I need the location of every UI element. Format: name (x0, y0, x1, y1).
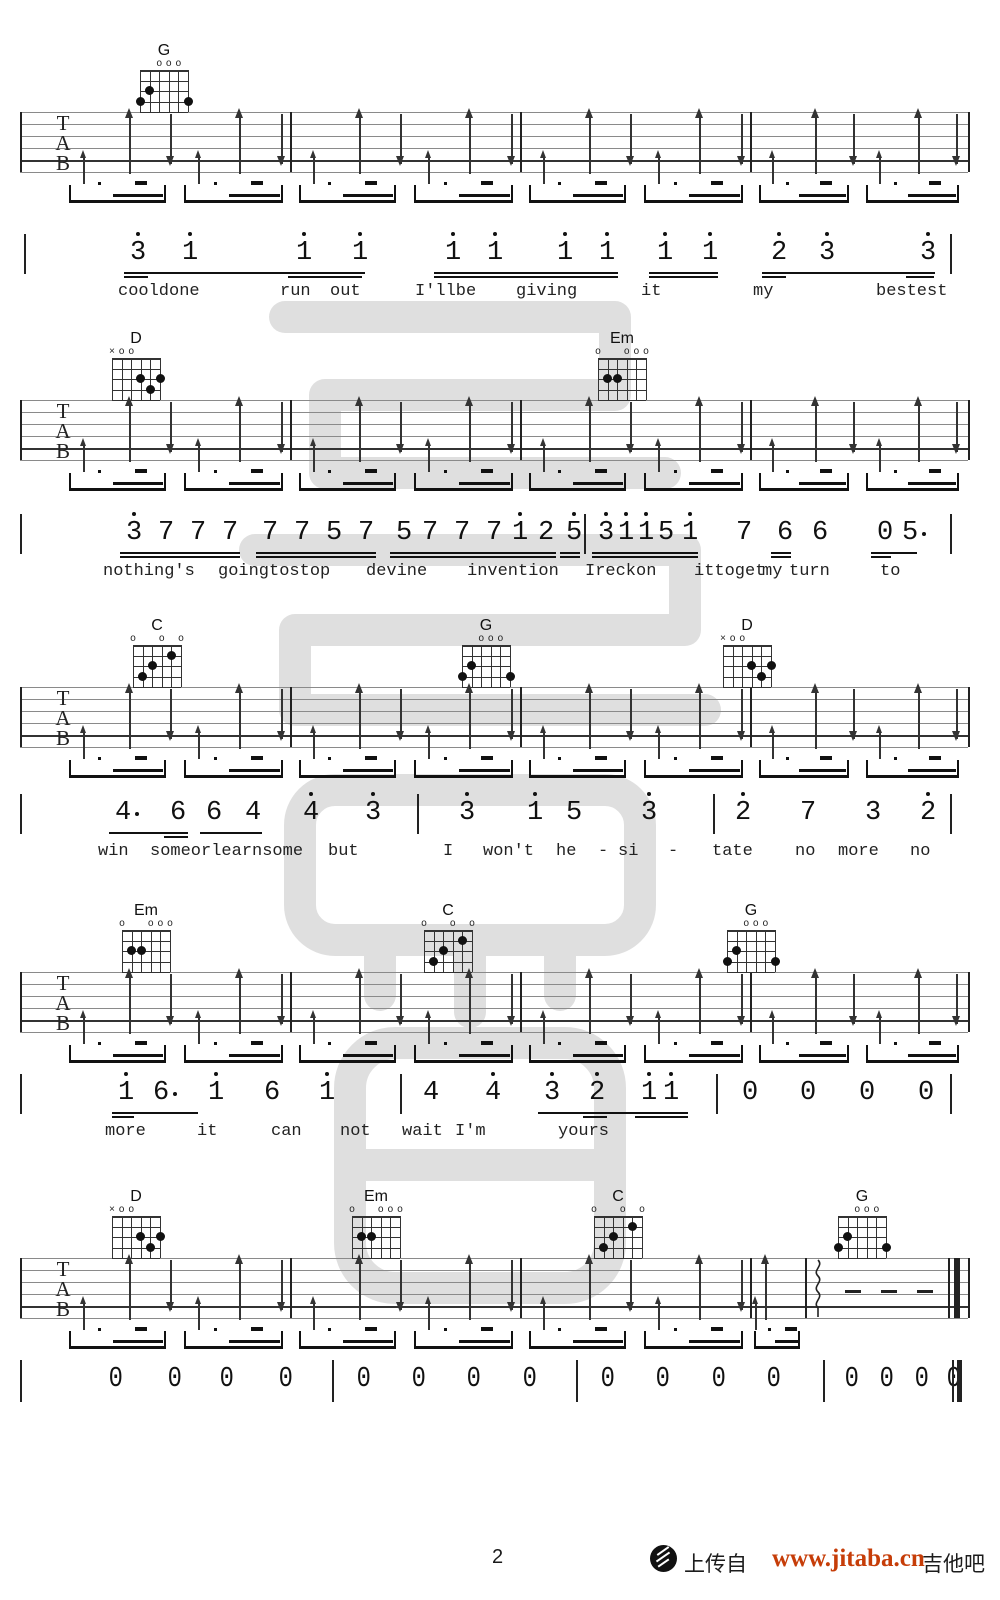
strum-down-arrow (277, 731, 285, 741)
beam-dot (558, 182, 561, 185)
bass-strum-arrow (310, 1296, 316, 1304)
staff-line (20, 996, 968, 997)
bass-strum-arrow (313, 733, 315, 759)
beam-tick (511, 1045, 513, 1063)
beam-line-2 (573, 1054, 623, 1057)
fret-grid-line (838, 1258, 886, 1259)
beam-dash (251, 1041, 263, 1045)
beam-dash (365, 181, 377, 185)
note-underline (390, 556, 556, 558)
strum-down-arrow (396, 156, 404, 166)
beam-group (184, 488, 283, 491)
beam-tick (866, 760, 868, 778)
strum-up-arrow (918, 976, 920, 1034)
fret-grid-line (727, 962, 775, 963)
bass-strum-arrow (195, 1010, 201, 1018)
melody-note: 1 (352, 238, 368, 268)
beam-tick (624, 1045, 626, 1063)
strum-up-arrow (355, 968, 363, 978)
melody-note: 4 (303, 798, 319, 828)
beam-dot (328, 757, 331, 760)
lyric-syllable: turn (789, 562, 830, 581)
lyric-syllable: - (668, 842, 678, 861)
bass-strum-arrow (772, 733, 774, 759)
melody-note: 3 (130, 238, 146, 268)
strum-down-arrow (507, 731, 515, 741)
fret-grid-line (112, 358, 160, 360)
melody-note: 6 (777, 518, 793, 548)
measure-barline (805, 1258, 807, 1318)
beam-dash (711, 1041, 723, 1045)
beam-tick (644, 185, 646, 203)
fret-grid-line (352, 1258, 400, 1259)
beam-tick (281, 760, 283, 778)
strum-up-arrow (589, 116, 591, 174)
muted-string-marker: × (720, 634, 726, 645)
beam-tick (511, 760, 513, 778)
open-string-note: 0 (412, 1362, 426, 1395)
fret-grid-line (140, 102, 188, 103)
strum-down-arrow (166, 731, 174, 741)
octave-dot (132, 512, 136, 516)
bass-strum-arrow (658, 1018, 660, 1044)
octave-dot (663, 232, 667, 236)
tab-clef-letter: B (52, 439, 74, 464)
note-underline (256, 556, 376, 558)
bass-strum-arrow (313, 1304, 315, 1330)
measure-barline (750, 972, 752, 1032)
strum-down-arrow (507, 444, 515, 454)
note-underline (164, 832, 188, 834)
beam-dot (98, 182, 101, 185)
finger-dot (767, 661, 776, 670)
strum-up-arrow (914, 968, 922, 978)
chord-diagram-D: D×oo (112, 1188, 160, 1258)
beam-tick (529, 473, 531, 491)
beam-group (644, 1060, 743, 1063)
bass-strum-arrow (198, 446, 200, 472)
chord-diagram-G: Gooo (838, 1188, 886, 1258)
beam-group (69, 1346, 166, 1349)
bass-strum-arrow (540, 725, 546, 733)
open-string-marker: o (639, 1205, 645, 1216)
strum-down-arrow (952, 731, 960, 741)
strum-up-arrow (465, 108, 473, 118)
strum-down-arrow (277, 156, 285, 166)
beam-tick (624, 760, 626, 778)
beam-tick (511, 185, 513, 203)
melody-note: 0 (742, 1078, 758, 1108)
strum-up-arrow (465, 1254, 473, 1264)
bass-strum-arrow (879, 446, 881, 472)
fret-grid-line (462, 677, 510, 678)
octave-dot (688, 512, 692, 516)
beam-dash (820, 1041, 832, 1045)
beam-dot (558, 757, 561, 760)
beam-dot (214, 182, 217, 185)
melody-note: 1 (118, 1078, 134, 1108)
open-string-marker: o (157, 919, 163, 930)
tab-clef-letter: B (52, 1011, 74, 1036)
octave-dot (493, 232, 497, 236)
beam-line-2 (113, 482, 163, 485)
note-underline (288, 272, 362, 274)
open-string-marker: o (175, 59, 181, 70)
open-string-note: 0 (220, 1362, 234, 1395)
melody-note: 7 (486, 518, 502, 548)
measure-barline (20, 1258, 22, 1318)
beam-tick (414, 1331, 416, 1349)
beam-dot (786, 470, 789, 473)
open-string-marker: o (119, 1205, 125, 1216)
fret-grid-line (598, 369, 646, 370)
open-string-marker: o (620, 1205, 626, 1216)
melody-note: 1 (527, 798, 543, 828)
strum-down-arrow (737, 1302, 745, 1312)
bass-strum-arrow (428, 733, 430, 759)
bass-strum-arrow (310, 150, 316, 158)
open-string-marker: o (397, 1205, 403, 1216)
beam-dot (444, 1328, 447, 1331)
finger-dot (137, 946, 146, 955)
beam-tick (624, 185, 626, 203)
fret-grid-line (723, 687, 771, 688)
lyric-syllable: out (330, 282, 361, 301)
strum-up-arrow (918, 691, 920, 749)
chord-name: G (727, 902, 775, 920)
staff-line (20, 984, 968, 985)
open-string-marker: o (156, 59, 162, 70)
note-underline (762, 276, 786, 278)
strum-down-arrow (626, 444, 634, 454)
strum-up-arrow (129, 404, 131, 462)
beam-dash (595, 469, 607, 473)
melody-barline (417, 794, 419, 834)
measure-barline (750, 687, 752, 747)
beam-dash (251, 181, 263, 185)
open-string-marker: o (130, 634, 136, 645)
finger-dot (747, 661, 756, 670)
strum-down-arrow (952, 1016, 960, 1026)
melody-note: 3 (641, 798, 657, 828)
bass-strum-arrow (428, 1018, 430, 1044)
staff-line (20, 172, 968, 173)
strum-down-arrow (737, 731, 745, 741)
fret-grid-line (181, 645, 182, 687)
upload-credit: 上传自 (684, 1548, 747, 1578)
fret-grid-line (188, 70, 189, 112)
lyric-syllable: invention (467, 562, 559, 581)
bass-strum-arrow (655, 1296, 661, 1304)
lyric-syllable: more (838, 842, 879, 861)
open-string-marker: o (743, 919, 749, 930)
staff-line (20, 124, 968, 125)
strum-up-arrow (811, 683, 819, 693)
beam-tick (529, 760, 531, 778)
lyric-syllable: it (641, 282, 661, 301)
note-underline (200, 832, 262, 834)
beam-line-2 (799, 482, 846, 485)
bass-strum-arrow (540, 1296, 546, 1304)
finger-dot (609, 1232, 618, 1241)
melody-barline (716, 1074, 718, 1114)
octave-dot (533, 792, 537, 796)
note-underline (762, 272, 786, 274)
strum-down-arrow (952, 444, 960, 454)
beam-group (69, 200, 166, 203)
fret-grid-line (598, 400, 646, 401)
lyric-syllable: he (556, 842, 576, 861)
bass-strum-arrow (876, 438, 882, 446)
measure-barline (968, 112, 970, 172)
open-string-marker: o (119, 919, 125, 930)
beam-dash (595, 1041, 607, 1045)
beam-dash (820, 469, 832, 473)
octave-dot (741, 792, 745, 796)
note-underline (592, 552, 698, 554)
beam-dash (929, 1041, 941, 1045)
finger-dot (723, 957, 732, 966)
beam-dash (365, 469, 377, 473)
finger-dot (467, 661, 476, 670)
beam-tick (414, 1045, 416, 1063)
open-string-marker: o (643, 347, 649, 358)
beam-dot (444, 470, 447, 473)
fret-grid-line (133, 666, 181, 667)
beam-tick (69, 1331, 71, 1349)
open-string-marker: o (488, 634, 494, 645)
fret-grid-line (462, 687, 510, 688)
finger-dot (771, 957, 780, 966)
hold-dash (917, 1290, 933, 1293)
beam-dot (894, 1042, 897, 1045)
open-string-marker: o (739, 634, 745, 645)
measure-barline (968, 400, 970, 460)
beam-line-2 (113, 769, 163, 772)
beam-dash (595, 756, 607, 760)
beam-tick (759, 1045, 761, 1063)
beam-tick (394, 1331, 396, 1349)
beam-dash (481, 1041, 493, 1045)
melody-note: 5 (902, 518, 918, 548)
beam-line-2 (459, 1054, 510, 1057)
fret-grid-line (594, 1237, 642, 1238)
strum-up-arrow (585, 683, 593, 693)
strum-up-arrow (699, 116, 701, 174)
finger-dot (184, 97, 193, 106)
beam-dash (135, 469, 147, 473)
fret-grid-line (122, 962, 170, 963)
lyric-syllable: - (598, 842, 608, 861)
beam-dash (135, 181, 147, 185)
beam-dot (674, 1042, 677, 1045)
melody-note: 1 (557, 238, 573, 268)
finger-dot (156, 374, 165, 383)
melody-barline (400, 1074, 402, 1114)
bass-strum-arrow (655, 1010, 661, 1018)
fret-grid-line (112, 1258, 160, 1259)
strum-down-arrow (396, 731, 404, 741)
beam-tick (299, 760, 301, 778)
beam-dot (214, 757, 217, 760)
open-string-note: 0 (880, 1362, 894, 1395)
octave-dot (647, 1072, 651, 1076)
beam-tick (957, 185, 959, 203)
open-string-marker: o (730, 634, 736, 645)
note-underline (583, 1112, 607, 1114)
beam-line-2 (799, 769, 846, 772)
fret-grid-line (133, 687, 181, 688)
page-number: 2 (492, 1546, 503, 1569)
beam-group (414, 1060, 513, 1063)
fret-grid-line (352, 1216, 400, 1218)
beam-dot (768, 1328, 771, 1331)
melody-barline (332, 1360, 334, 1402)
beam-tick (847, 473, 849, 491)
measure-barline (20, 112, 22, 172)
fret-grid-line (594, 1216, 642, 1218)
chord-diagram-G: Gooo (140, 42, 188, 112)
beam-group (184, 1060, 283, 1063)
strum-down-arrow (626, 1016, 634, 1026)
strum-up-arrow (695, 683, 703, 693)
fret-grid-line (775, 930, 776, 972)
beam-group (69, 488, 166, 491)
strum-down-arrow (626, 1302, 634, 1312)
lyric-syllable: my (762, 562, 782, 581)
bass-strum-arrow (879, 158, 881, 184)
bass-strum-arrow (772, 158, 774, 184)
open-string-marker: o (497, 634, 503, 645)
beam-group (184, 200, 283, 203)
fret-grid-line (646, 358, 647, 400)
beam-dot (894, 470, 897, 473)
strum-up-arrow (765, 1262, 767, 1320)
chord-name: D (112, 330, 160, 348)
beam-tick (299, 185, 301, 203)
bass-strum-arrow (543, 158, 545, 184)
bass-strum-arrow (543, 1018, 545, 1044)
bass-strum-arrow (198, 1304, 200, 1330)
lyric-syllable: ittoget (694, 562, 765, 581)
fret-grid-line (594, 1258, 642, 1259)
strum-down-arrow (166, 444, 174, 454)
octave-dot (188, 232, 192, 236)
measure-barline (520, 972, 522, 1032)
staff-line (20, 699, 968, 700)
beam-dash (365, 1041, 377, 1045)
measure-barline (20, 687, 22, 747)
strum-up-arrow (469, 976, 471, 1034)
octave-dot (708, 232, 712, 236)
melody-note: 1 (657, 238, 673, 268)
staff-line (20, 711, 968, 712)
strum-up-arrow (359, 691, 361, 749)
fret-grid-line (462, 656, 510, 657)
beam-dot (558, 1328, 561, 1331)
finger-dot (429, 957, 438, 966)
melody-barline (950, 1074, 952, 1114)
chord-name: G (140, 42, 188, 60)
finger-dot (156, 1232, 165, 1241)
strum-down-arrow (737, 1016, 745, 1026)
bass-strum-arrow (83, 1304, 85, 1330)
fret-grid-line (424, 930, 472, 932)
octave-dot (465, 792, 469, 796)
strum-up-arrow (355, 683, 363, 693)
finger-dot (458, 936, 467, 945)
note-underline (635, 1116, 688, 1118)
finger-dot (367, 1232, 376, 1241)
beam-tick (281, 1045, 283, 1063)
beam-line-2 (229, 1054, 280, 1057)
beam-line-2 (689, 1340, 740, 1343)
beam-tick (164, 1331, 166, 1349)
duration-dot (922, 532, 926, 536)
strum-up-arrow (469, 691, 471, 749)
melody-barline (576, 1360, 578, 1402)
fret-grid-line (642, 1216, 643, 1258)
bass-strum-arrow (80, 725, 86, 733)
chord-name: Em (598, 330, 646, 348)
open-string-marker: o (864, 1205, 870, 1216)
beam-tick (741, 185, 743, 203)
beam-group (414, 488, 513, 491)
beam-line-2 (573, 1340, 623, 1343)
finger-dot (136, 374, 145, 383)
beam-tick (759, 473, 761, 491)
fret-grid-line (723, 656, 771, 657)
strum-up-arrow (699, 691, 701, 749)
beam-tick (394, 185, 396, 203)
melody-note: 3 (544, 1078, 560, 1108)
open-string-note: 0 (467, 1362, 481, 1395)
beam-group (414, 775, 513, 778)
beam-tick (394, 760, 396, 778)
strum-up-arrow (125, 108, 133, 118)
beam-group (866, 200, 958, 203)
open-string-marker: o (873, 1205, 879, 1216)
beam-group (529, 775, 626, 778)
finger-dot (628, 1222, 637, 1231)
beam-line-2 (775, 1340, 799, 1343)
note-underline (649, 276, 718, 278)
melody-note: 7 (158, 518, 174, 548)
note-underline (649, 272, 718, 274)
bass-strum-arrow (752, 1296, 758, 1304)
lyric-syllable: si (618, 842, 638, 861)
open-string-marker: o (624, 347, 630, 358)
chord-name: D (723, 617, 771, 635)
melody-note: 7 (800, 798, 816, 828)
note-underline (771, 552, 791, 554)
open-string-marker: o (595, 347, 601, 358)
beam-tick (511, 473, 513, 491)
fret-grid-line (510, 645, 511, 687)
bass-strum-arrow (655, 438, 661, 446)
beam-tick (394, 473, 396, 491)
strum-up-arrow (815, 691, 817, 749)
melody-note: 0 (859, 1078, 875, 1108)
measure-barline (20, 400, 22, 460)
lyric-syllable: can (271, 1122, 302, 1141)
arpeggio-squiggle-icon (812, 1259, 824, 1317)
melody-note: 6 (206, 798, 222, 828)
tab-clef-letter: B (52, 1297, 74, 1322)
beam-group (866, 775, 958, 778)
beam-group (299, 200, 396, 203)
beam-tick (644, 1331, 646, 1349)
